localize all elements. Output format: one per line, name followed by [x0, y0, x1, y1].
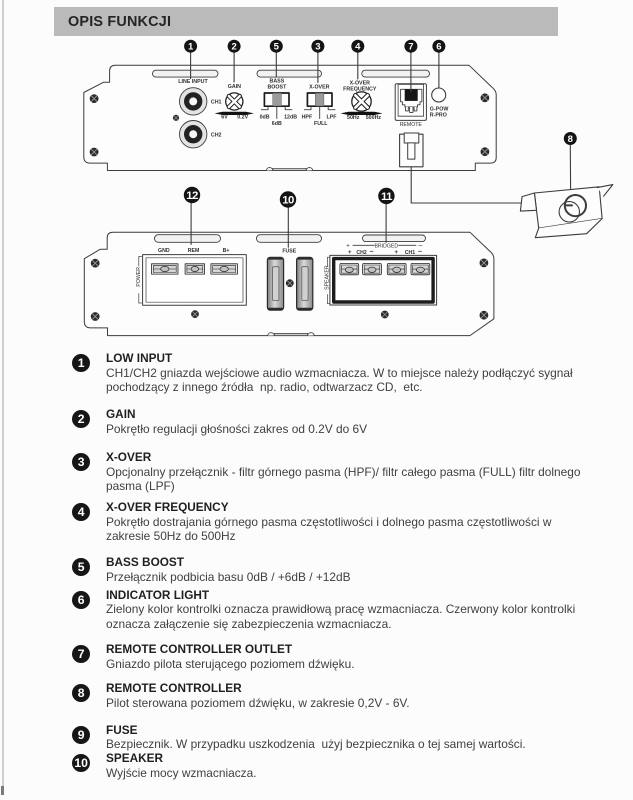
svg-text:1: 1	[188, 42, 194, 53]
svg-text:BRIDGED: BRIDGED	[374, 243, 398, 249]
svg-text:12: 12	[186, 190, 198, 202]
svg-text:LINE INPUT: LINE INPUT	[178, 79, 208, 85]
svg-text:BOOST: BOOST	[267, 84, 287, 90]
svg-text:REM: REM	[188, 248, 200, 254]
svg-text:–: –	[418, 248, 422, 255]
svg-text:500Hz: 500Hz	[366, 115, 382, 121]
svg-text:6dB: 6dB	[272, 121, 282, 127]
svg-text:0.2V: 0.2V	[237, 115, 248, 121]
svg-text:POWER: POWER	[136, 267, 142, 287]
svg-text:LPF: LPF	[326, 115, 337, 121]
svg-text:REMOTE: REMOTE	[400, 122, 423, 128]
svg-text:+: +	[346, 244, 350, 250]
svg-text:CH2: CH2	[211, 132, 222, 138]
svg-text:12dB: 12dB	[284, 115, 297, 121]
svg-text:GAIN: GAIN	[228, 84, 241, 90]
svg-text:R-PRO: R-PRO	[430, 113, 447, 119]
svg-text:7: 7	[408, 42, 413, 53]
svg-text:B+: B+	[223, 248, 230, 254]
svg-text:50Hz: 50Hz	[347, 115, 360, 121]
svg-text:6V: 6V	[221, 115, 228, 121]
svg-text:4: 4	[355, 42, 361, 53]
svg-text:FULL: FULL	[314, 121, 328, 127]
svg-text:HPF: HPF	[302, 115, 313, 121]
svg-text:8: 8	[568, 134, 573, 145]
svg-text:11: 11	[381, 191, 393, 203]
svg-text:–: –	[370, 248, 374, 255]
svg-text:X-OVER: X-OVER	[309, 84, 329, 90]
svg-text:G-POW: G-POW	[430, 106, 449, 112]
svg-text:0dB: 0dB	[260, 115, 270, 121]
svg-text:5: 5	[274, 42, 280, 53]
svg-text:FUSE: FUSE	[282, 248, 296, 254]
svg-text:GND: GND	[158, 248, 170, 254]
svg-text:2: 2	[231, 42, 236, 53]
svg-text:3: 3	[315, 42, 320, 53]
svg-text:SPEAKER: SPEAKER	[324, 265, 330, 290]
svg-text:CH1: CH1	[211, 100, 222, 106]
svg-text:10: 10	[282, 195, 294, 207]
svg-text:6: 6	[436, 42, 441, 53]
